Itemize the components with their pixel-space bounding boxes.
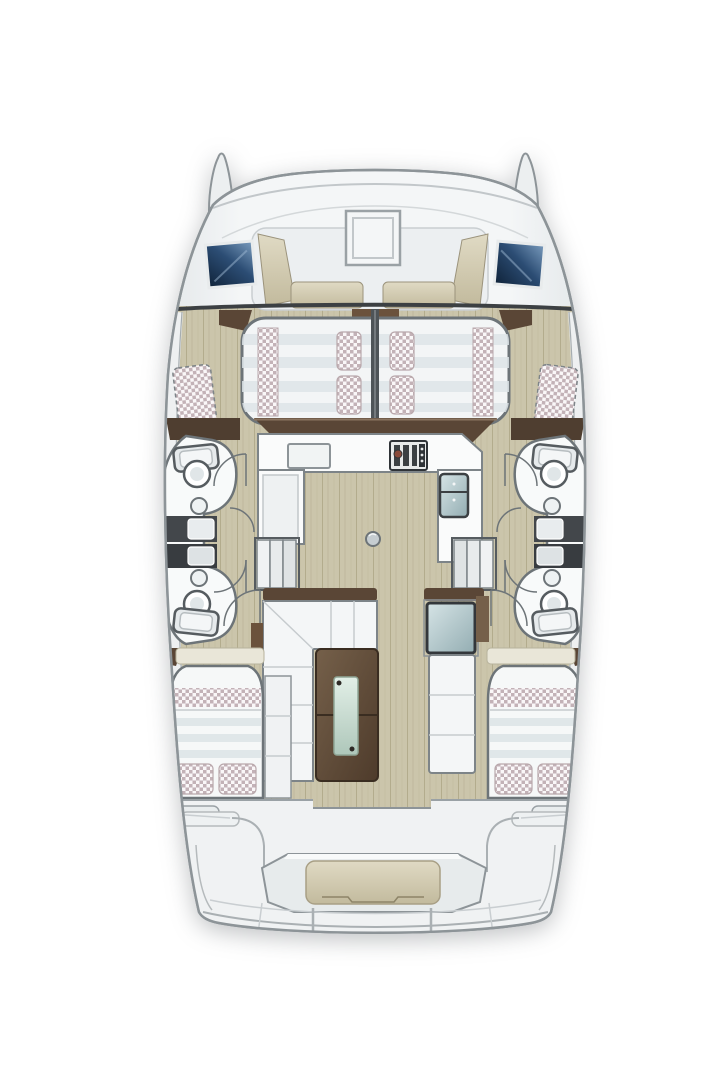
galley-sink [288,444,330,468]
side-locker-trim-starboard [511,418,585,440]
shower-seat [188,547,214,565]
washbasin [191,498,207,514]
berth-pillow [390,376,414,414]
berth-pillow [390,332,414,370]
cabin-wardrobe [265,676,291,798]
catamaran [160,154,590,961]
nav-back-trim [424,588,484,601]
aft-bench [262,854,486,912]
deck-plan-canvas [0,0,720,1080]
side-locker-trim-port [166,418,240,440]
galley-fridge [440,474,468,517]
cabin-headboard [487,648,575,664]
washbasin [191,570,207,586]
toilet-bowl-inner [190,467,204,481]
deck-plan [0,0,720,1080]
berth-checkered-runner [258,328,278,416]
foredeck-hatch [346,211,400,265]
cabin-headboard [176,648,264,664]
galley-worktop-inset [263,475,298,538]
port-foredeck-window [205,241,256,288]
berth-checkered-runner [473,328,493,416]
nav-bench [429,655,475,773]
bed-checkered-band [172,688,261,707]
transom-step [181,812,239,826]
galley-stove [390,441,427,470]
salon-table [316,649,378,781]
table-glass-inlay [334,677,358,755]
transom-step [512,812,570,826]
aft-deck [160,800,590,960]
bed-pillow [219,764,256,794]
bed-pillow [495,764,532,794]
berth-pillow [337,332,361,370]
shower-seat [188,519,214,539]
nav-side-trim [476,596,489,642]
toilet [173,608,219,636]
port-stairway [255,538,299,590]
starboard-foredeck-window [494,241,545,288]
bed-stripes [172,718,261,758]
sofa-back-trim [263,588,377,601]
starboard-stairway [452,538,496,590]
nav-glass-table [427,603,475,653]
salon-door-sill [313,800,431,808]
berth-pillow [337,376,361,414]
bed-stripes [490,718,579,758]
bed-checkered-band [490,688,579,707]
